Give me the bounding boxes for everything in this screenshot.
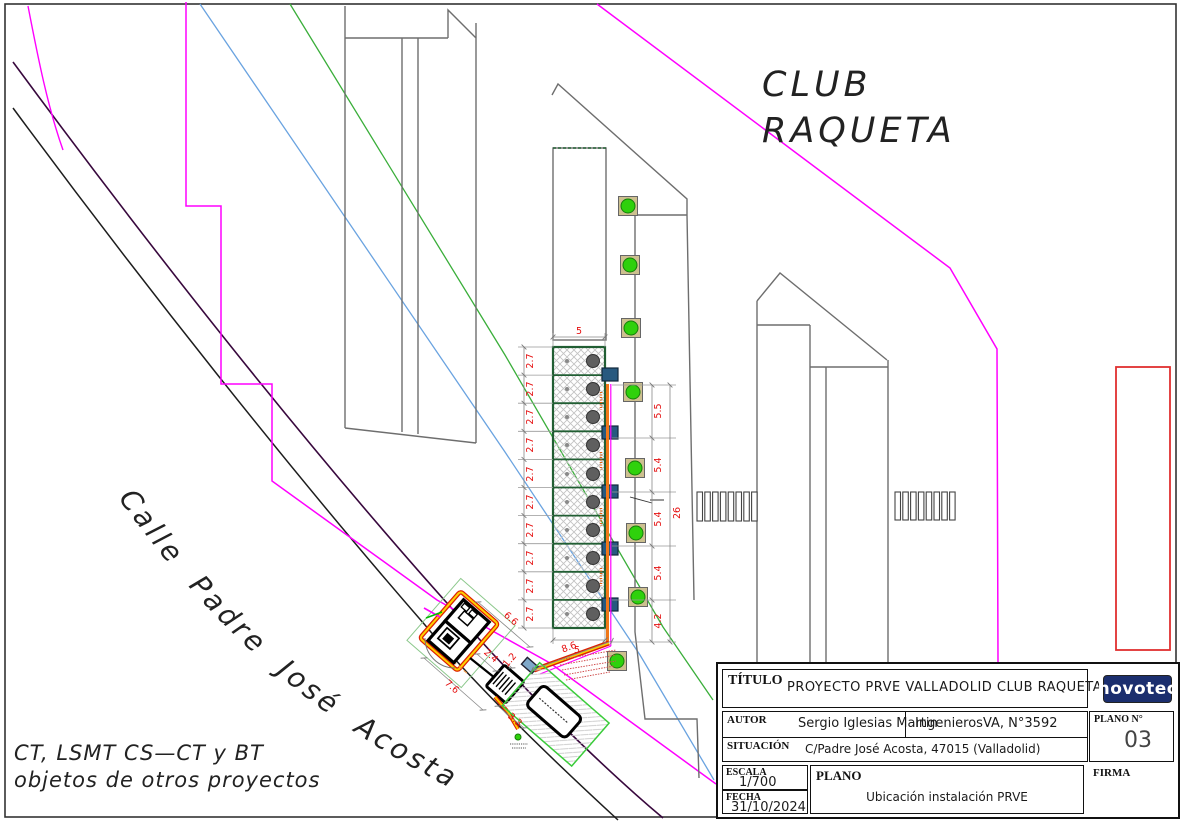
dim-label: 4.2: [653, 613, 664, 628]
dim-label: 26: [672, 507, 683, 519]
ground-rod-label: [510, 744, 528, 748]
tree: [619, 197, 638, 216]
titulo-cell: TÍTULO PROYECTO PRVE VALLADOLID CLUB RAQ…: [722, 669, 1088, 708]
fecha-cell: FECHA 31/10/2024: [722, 790, 808, 814]
site-plan-sheet: 2.7 2.7 2.7 2.7 2.7 2.7 2.7 2.7 2.7 2.7 …: [0, 0, 1181, 821]
plano-cell: PLANO Ubicación instalación PRVE: [810, 765, 1084, 814]
tree: [629, 588, 648, 607]
note-line2: objetos de otros proyectos: [14, 767, 320, 794]
novotec-logo: novotec: [1103, 675, 1172, 703]
plano-label: PLANO: [816, 768, 862, 784]
cell-divider: [723, 737, 1087, 738]
dim-label: 5.4: [653, 457, 664, 472]
situacion-value: C/Padre José Acosta, 47015 (Valladolid): [805, 742, 1040, 756]
dim-label: 2.7: [525, 466, 536, 481]
building-left: [345, 6, 476, 443]
north-marker: [424, 608, 442, 618]
crosswalk-east: [895, 492, 955, 520]
utility-line-green: [290, 4, 713, 700]
note-line1: CT, LSMT CS—CT y BT: [14, 740, 320, 767]
situacion-label: SITUACIÓN: [727, 740, 789, 752]
cell-divider: [905, 712, 906, 737]
building-right: [757, 273, 888, 664]
tree: [608, 652, 627, 671]
firma-cell: FIRMA: [1089, 765, 1174, 814]
tree: [626, 459, 645, 478]
plano-num-value: 03: [1124, 728, 1152, 753]
dim-label: 2.7: [525, 606, 536, 621]
reserved-zone-red: [1116, 367, 1170, 650]
title-block: TÍTULO PROYECTO PRVE VALLADOLID CLUB RAQ…: [716, 662, 1180, 819]
club-label-line1: CLUB: [762, 62, 956, 108]
dim-label: 2.7: [525, 409, 536, 424]
dim-label: 2.7: [525, 437, 536, 452]
titulo-value: PROYECTO PRVE VALLADOLID CLUB RAQUETA: [787, 680, 1102, 695]
court-above-parking: [553, 148, 606, 340]
tree: [622, 319, 641, 338]
boundary-stub: [28, 6, 63, 150]
escala-value: 1/700: [739, 775, 776, 790]
dim-label: 6.6: [501, 610, 520, 628]
prve-parking-stalls: [553, 347, 605, 628]
autor-org-value: IngenierosVA, N°3592: [915, 716, 1058, 731]
firma-label: FIRMA: [1093, 767, 1130, 779]
fecha-value: 31/10/2024: [731, 800, 806, 815]
dim-label: 2.7: [525, 578, 536, 593]
dim-label: 2.4: [481, 647, 500, 665]
dim-label: 5.4: [653, 565, 664, 580]
dim-label: 2.7: [525, 381, 536, 396]
dim-label: 5.4: [653, 511, 664, 526]
dim-label: 2.7: [525, 550, 536, 565]
crosswalk-west: [697, 492, 757, 521]
plano-num-cell: PLANO N° 03: [1089, 711, 1174, 762]
tree: [627, 524, 646, 543]
plano-value: Ubicación instalación PRVE: [811, 790, 1083, 804]
dim-label: 5: [576, 326, 582, 337]
ground-rod: [515, 734, 521, 740]
legend-note: CT, LSMT CS—CT y BT objetos de otros pro…: [14, 740, 320, 794]
dim-label: 5.5: [653, 403, 664, 418]
club-label-line2: RAQUETA: [762, 108, 956, 154]
autor-situacion-cell: AUTOR Sergio Iglesias Martin IngenierosV…: [722, 711, 1088, 762]
dim-label: 2.7: [525, 522, 536, 537]
dim-label: 7.6: [442, 678, 461, 696]
plano-num-label: PLANO N°: [1094, 714, 1143, 725]
dim-label: 2.7: [525, 353, 536, 368]
autor-label: AUTOR: [727, 714, 767, 726]
escala-cell: ESCALA 1/700: [722, 765, 808, 790]
club-raqueta-label: CLUB RAQUETA: [762, 62, 956, 154]
dim-label: 2.7: [525, 494, 536, 509]
tree: [621, 256, 640, 275]
titulo-label: TÍTULO: [728, 673, 782, 689]
